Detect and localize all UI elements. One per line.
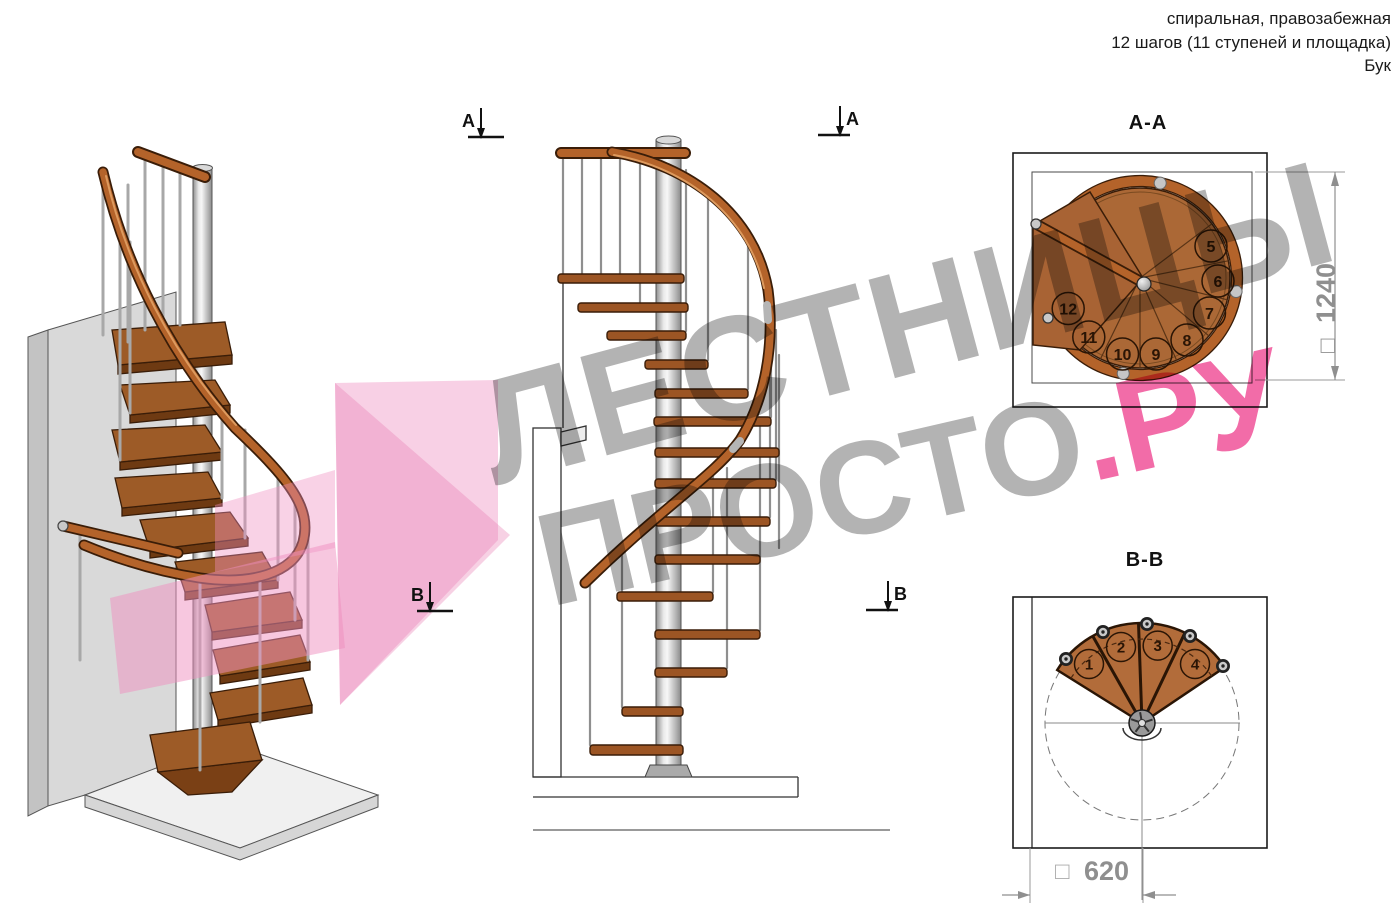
bb-treads bbox=[1057, 623, 1225, 723]
center-pole-3d bbox=[183, 165, 222, 776]
section-arrow-icon bbox=[884, 581, 892, 612]
title-block: спиральная, правозабежная 12 шагов (11 с… bbox=[1111, 7, 1391, 78]
iso-3d-view bbox=[0, 130, 520, 870]
bb-dimension-value: 620 bbox=[1084, 856, 1129, 886]
section-arrow-icon bbox=[426, 582, 434, 613]
title-line-material: Бук bbox=[1111, 54, 1391, 78]
bb-step-number: 2 bbox=[1117, 640, 1125, 657]
aa-step-number: 10 bbox=[1114, 347, 1132, 364]
aa-step-number: 5 bbox=[1207, 239, 1216, 256]
section-marker-a-left: А bbox=[455, 103, 511, 143]
aa-step-number: 7 bbox=[1205, 306, 1214, 323]
section-arrow-icon bbox=[477, 108, 485, 139]
marker-letter: В bbox=[894, 584, 907, 604]
section-arrow-icon bbox=[836, 106, 844, 137]
section-aa-label: А-А bbox=[1103, 112, 1193, 135]
section-bb-view: 1 2 3 4 □ 620 bbox=[1000, 545, 1400, 911]
drawing-sheet: { "header": { "line1": "спиральная, прав… bbox=[0, 0, 1400, 911]
section-marker-a-right: А bbox=[818, 101, 874, 141]
aa-pole-cap bbox=[1137, 277, 1151, 291]
aa-dimension: □ 1240 bbox=[1255, 172, 1345, 380]
bb-step-number: 3 bbox=[1154, 638, 1162, 655]
section-marker-b-left: В bbox=[404, 577, 460, 617]
aa-step-number: 12 bbox=[1059, 302, 1077, 319]
title-line-steps: 12 шагов (11 ступеней и площадка) bbox=[1111, 31, 1391, 55]
square-symbol: □ bbox=[1314, 338, 1341, 353]
section-bb-label: В-В bbox=[1100, 549, 1190, 572]
aa-step-number: 11 bbox=[1080, 330, 1097, 347]
marker-letter: А bbox=[462, 111, 475, 131]
square-symbol: □ bbox=[1055, 858, 1070, 885]
aa-step-number: 8 bbox=[1183, 333, 1192, 350]
bb-dimension: □ 620 bbox=[1002, 848, 1176, 903]
aa-step-number: 9 bbox=[1152, 347, 1161, 364]
bb-step-number: 1 bbox=[1085, 657, 1093, 674]
title-line-type: спиральная, правозабежная bbox=[1111, 7, 1391, 31]
bb-step-number: 4 bbox=[1191, 657, 1200, 674]
marker-letter: В bbox=[411, 585, 424, 605]
elevation-view bbox=[490, 100, 910, 840]
section-marker-b-right: В bbox=[866, 576, 922, 616]
aa-dimension-value: 1240 bbox=[1311, 263, 1341, 323]
section-aa-view: 5 6 7 8 9 10 11 12 □ 1240 bbox=[1000, 110, 1400, 430]
aa-step-number: 6 bbox=[1214, 274, 1223, 291]
marker-letter: А bbox=[846, 109, 859, 129]
